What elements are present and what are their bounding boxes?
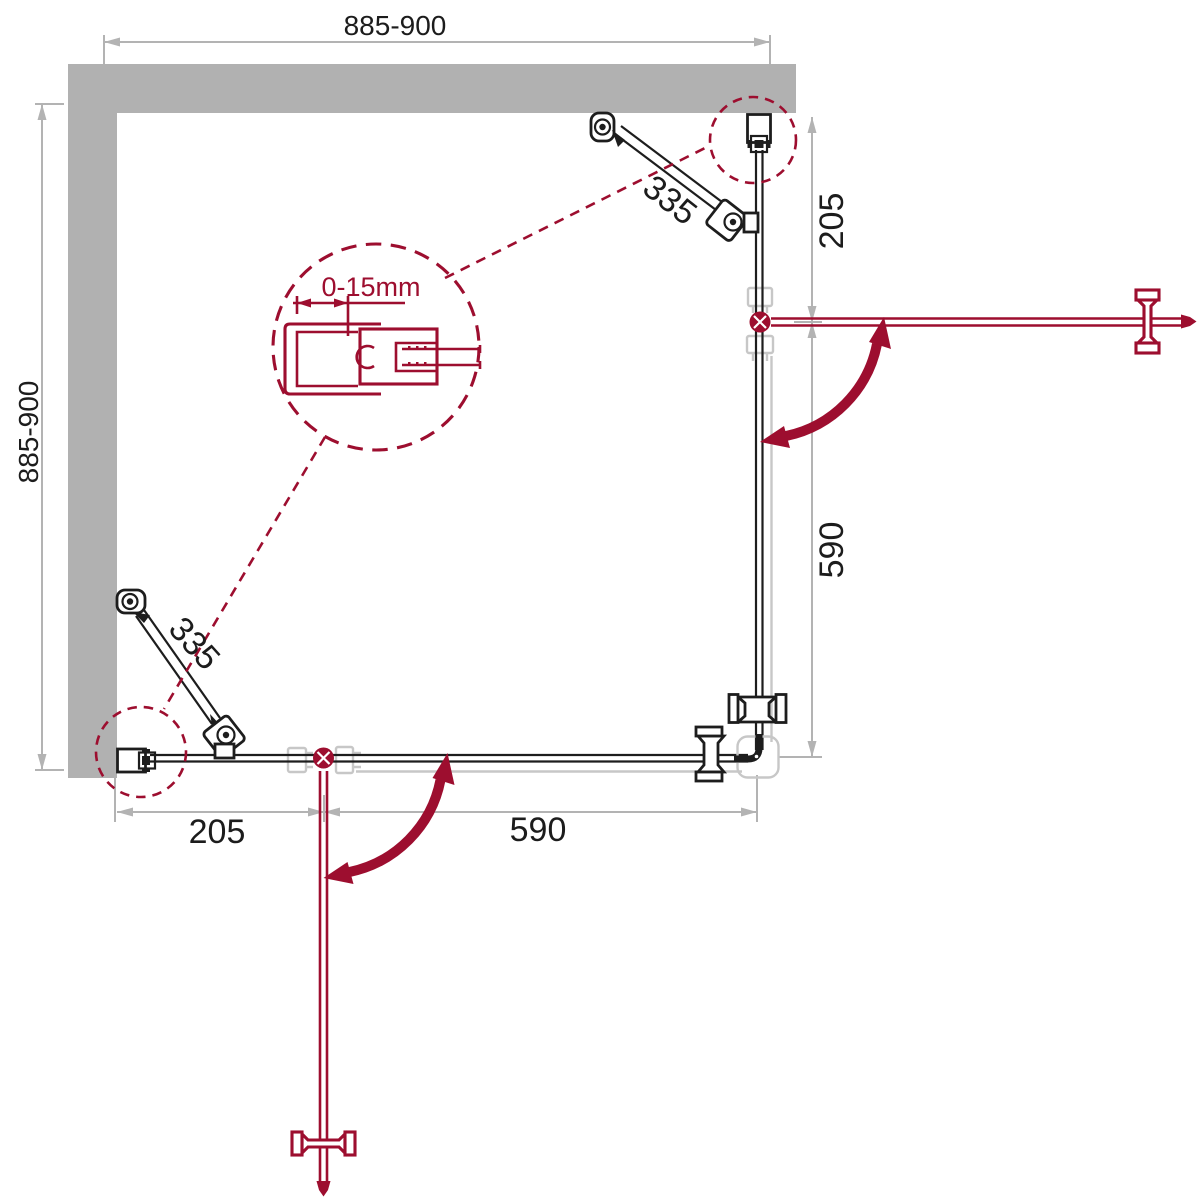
door-right-end-tip	[1181, 315, 1197, 329]
knob-right-panel	[729, 695, 786, 723]
support-bar-top-label: 335	[636, 168, 704, 233]
detail-profile-drawing	[285, 296, 480, 394]
wall	[68, 64, 796, 778]
dim-label-right-door: 590	[813, 522, 851, 579]
ghost-door-right	[747, 288, 773, 742]
door-right-handle	[1138, 300, 1157, 343]
dim-label-bottom-door: 590	[510, 811, 567, 849]
door-bottom-end-tip	[317, 1181, 331, 1197]
dim-label-width-top: 885-900	[344, 10, 447, 41]
dim-label-bottom-fixed: 205	[189, 813, 246, 851]
ghost-door-bottom	[288, 747, 742, 773]
glass-panel-right	[756, 150, 763, 750]
shower-enclosure-diagram: 885-900 885-900 205 590 205 590 335 335 …	[0, 0, 1200, 1198]
wall-profile-top	[748, 115, 771, 153]
support-bar-bottom	[117, 590, 246, 758]
diagram-canvas: 885-900 885-900 205 590 205 590 335 335 …	[0, 0, 1200, 1198]
dim-label-height-left: 885-900	[13, 381, 44, 484]
door-bottom-handle	[302, 1134, 345, 1153]
leader-line-bottom	[164, 437, 325, 709]
detail-adjustment-label: 0-15mm	[321, 272, 420, 302]
wall-profile-bottom	[118, 749, 156, 772]
dim-label-right-fixed: 205	[813, 193, 851, 250]
swing-arrow-right	[760, 317, 891, 448]
